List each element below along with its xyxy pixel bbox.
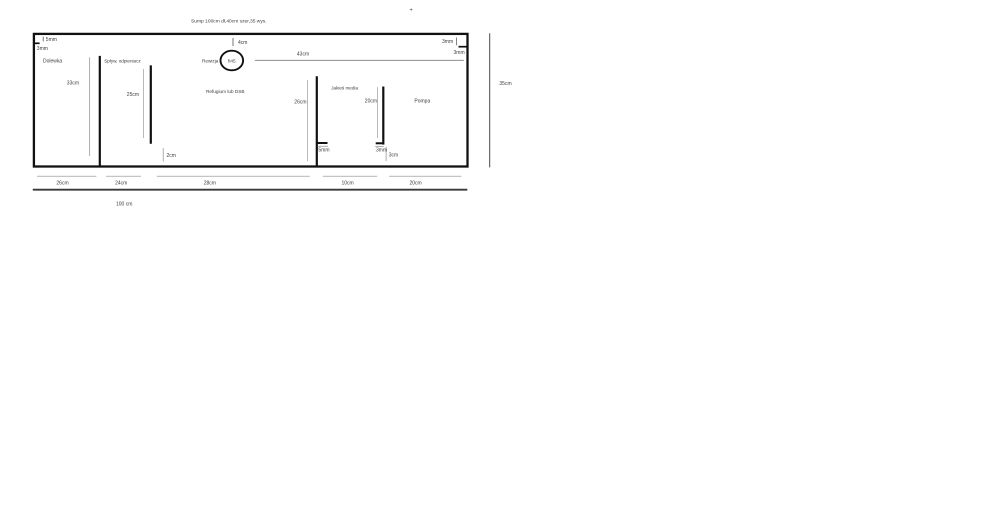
svg-text:5mm: 5mm (318, 147, 329, 153)
svg-text:Sump 100cm dł,40cm szer,35 wys: Sump 100cm dł,40cm szer,35 wys. (191, 18, 267, 24)
svg-text:43cm: 43cm (297, 52, 309, 58)
svg-text:fi45: fi45 (228, 58, 236, 63)
svg-text:35cm: 35cm (499, 81, 511, 87)
svg-text:26cm: 26cm (294, 99, 306, 105)
svg-text:20cm: 20cm (365, 98, 377, 104)
svg-text:100 cm: 100 cm (116, 201, 132, 207)
svg-text:Jakieś media: Jakieś media (331, 85, 358, 90)
svg-text:20cm: 20cm (410, 181, 422, 187)
svg-text:Spływ, odpieniacz: Spływ, odpieniacz (104, 58, 141, 63)
svg-text:24cm: 24cm (115, 181, 127, 187)
svg-text:2cm: 2cm (167, 153, 176, 159)
svg-text:10cm: 10cm (342, 181, 354, 187)
svg-text:5mm: 5mm (46, 37, 57, 43)
svg-text:3mm: 3mm (376, 148, 387, 154)
svg-text:26cm: 26cm (56, 181, 68, 187)
svg-text:Dolewka: Dolewka (43, 58, 62, 64)
svg-text:33cm: 33cm (67, 80, 79, 86)
svg-text:3mm: 3mm (454, 50, 465, 56)
svg-text:4cm: 4cm (238, 40, 247, 46)
svg-text:28cm: 28cm (204, 181, 216, 187)
svg-text:3cm: 3cm (389, 152, 398, 158)
svg-text:Pompa: Pompa (414, 99, 430, 105)
svg-text:3mm: 3mm (37, 46, 48, 52)
svg-text:3mm: 3mm (442, 39, 453, 45)
svg-text:Refugium lub DSB: Refugium lub DSB (206, 89, 245, 94)
svg-text:Rewizja: Rewizja (202, 58, 219, 63)
svg-text:25cm: 25cm (127, 92, 139, 98)
svg-text:+: + (410, 8, 413, 14)
